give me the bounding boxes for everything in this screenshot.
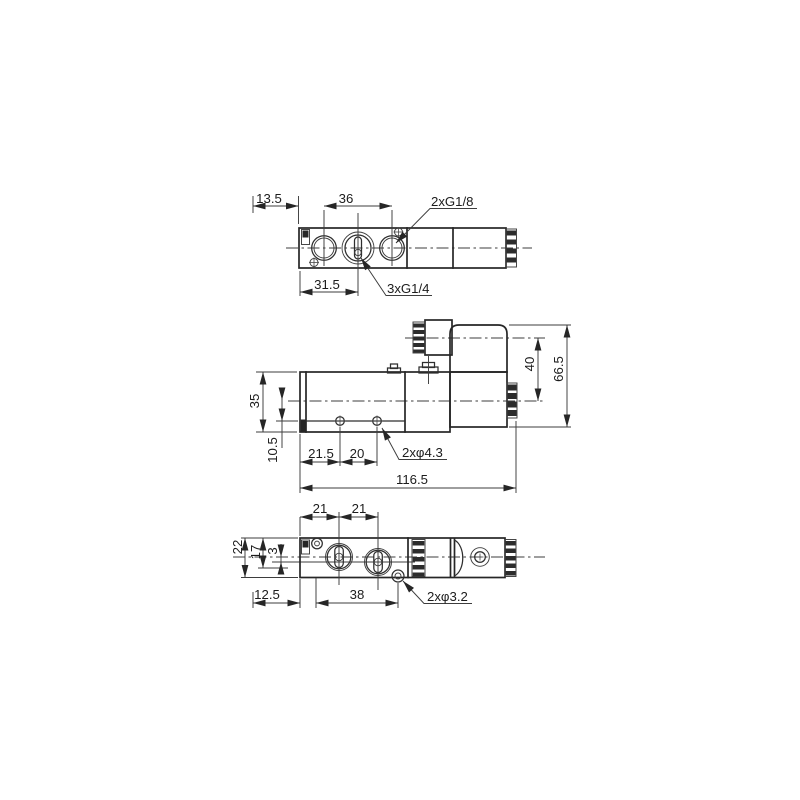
mounting-hole-2 xyxy=(372,416,383,427)
valve-body-outline xyxy=(300,372,450,432)
solenoid-ribs-left xyxy=(412,540,425,577)
ribbed-end xyxy=(505,540,516,577)
screw-top-left xyxy=(312,538,323,549)
clamp-notch-fill xyxy=(303,541,309,548)
label-2xg18: 2xG1/8 xyxy=(431,194,474,209)
label-2xphi32: 2xφ3.2 xyxy=(427,589,468,604)
dim-13-5: 13.5 xyxy=(256,191,282,206)
dim-36: 36 xyxy=(339,191,354,206)
side-view-dimensions: 35 10.5 21.5 20 2xφ4.3 116.5 40 66.5 xyxy=(247,325,571,493)
dim-22: 22 xyxy=(230,540,245,555)
dim-35: 35 xyxy=(247,394,262,409)
dim-21-a: 21 xyxy=(313,501,328,516)
bottom-view: 21 21 22 17 3 12.5 38 2xφ3.2 xyxy=(230,501,545,608)
solenoid-block xyxy=(450,372,507,427)
mounting-hole-1 xyxy=(335,416,346,427)
dim-21-5: 21.5 xyxy=(308,446,334,461)
top-view-dimensions: 13.5 36 31.5 2xG1/8 3xG1/4 xyxy=(253,191,477,296)
drawing-canvas: 13.5 36 31.5 2xG1/8 3xG1/4 xyxy=(0,0,800,800)
pilot-boss xyxy=(419,356,438,384)
dim-20: 20 xyxy=(350,446,365,461)
screw-bottom-right xyxy=(392,570,404,582)
exhaust-port-1 xyxy=(326,512,353,585)
dim-38: 38 xyxy=(350,587,365,602)
dim-31-5: 31.5 xyxy=(314,277,340,292)
conduit-ribs xyxy=(507,383,517,418)
end-cap-fill xyxy=(301,420,306,432)
dim-12-5: 12.5 xyxy=(254,587,280,602)
dim-3: 3 xyxy=(265,547,280,554)
din-plug-cable-ribs xyxy=(413,322,425,353)
coil-arc xyxy=(455,540,463,576)
dim-40: 40 xyxy=(522,357,537,372)
side-view: 35 10.5 21.5 20 2xφ4.3 116.5 40 66.5 xyxy=(247,320,571,493)
dim-21-b: 21 xyxy=(352,501,367,516)
din-plug xyxy=(425,320,452,355)
port-circle-center xyxy=(342,213,374,296)
label-3xg14: 3xG1/4 xyxy=(387,281,430,296)
valve-technical-drawing: 13.5 36 31.5 2xG1/8 3xG1/4 xyxy=(0,0,800,800)
clamp-notch-fill xyxy=(303,231,309,238)
dim-116-5: 116.5 xyxy=(396,472,428,487)
dim-66-5: 66.5 xyxy=(551,356,566,382)
dim-10-5: 10.5 xyxy=(265,437,280,463)
top-view: 13.5 36 31.5 2xG1/8 3xG1/4 xyxy=(253,191,532,296)
leader-2xg18 xyxy=(396,209,477,244)
dim-17: 17 xyxy=(248,545,263,560)
solenoid-connector-cap xyxy=(450,325,507,372)
port-circle-1 xyxy=(312,210,337,266)
label-2xphi43: 2xφ4.3 xyxy=(402,445,443,460)
